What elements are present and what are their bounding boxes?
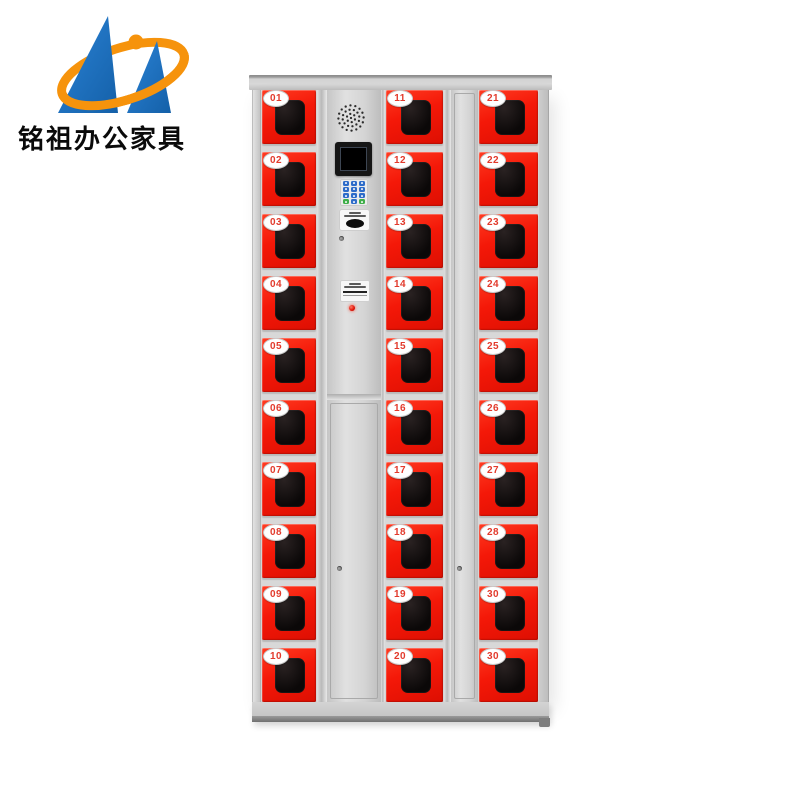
locker-door[interactable]: 09 [262,586,316,640]
console-upper-panel [327,90,381,394]
door-number-badge: 18 [387,524,413,541]
door-number-badge: 17 [387,462,413,479]
logo-dot [129,35,144,50]
keypad-key[interactable] [359,181,365,186]
locker-door[interactable]: 18 [386,524,443,578]
door-number-badge: 20 [387,648,413,665]
door-number-badge: 07 [263,462,289,479]
locker-door[interactable]: 01 [262,90,316,144]
keypad-key[interactable] [351,199,357,204]
locker-door[interactable]: 24 [479,276,538,330]
door-number-badge: 10 [263,648,289,665]
smart-locker-cabinet: 01020304050607080910 [252,75,549,722]
keypad-key[interactable] [343,187,349,192]
printer-instruction-bar [344,286,366,288]
cabinet-body: 01020304050607080910 [252,90,549,702]
keypad-key[interactable] [359,199,365,204]
keyhole-lock[interactable] [337,566,342,571]
door-number-badge: 12 [387,152,413,169]
locker-door[interactable]: 23 [479,214,538,268]
locker-door[interactable]: 25 [479,338,538,392]
door-number-badge: 21 [480,90,506,107]
door-number-badge: 09 [263,586,289,603]
door-column-middle: 11121314151617181920 [385,90,444,702]
cabinet-base-edge [252,716,549,722]
console-service-door[interactable] [327,400,381,702]
door-number-badge: 26 [480,400,506,417]
printer-instruction-bar [349,283,361,285]
door-number-badge: 19 [387,586,413,603]
service-door-outline [330,403,378,699]
brand-logo: 铭祖办公家具 [0,0,240,160]
keypad-key[interactable] [343,181,349,186]
door-number-badge: 05 [263,338,289,355]
locker-door[interactable]: 30 [479,648,538,702]
locker-door[interactable]: 22 [479,152,538,206]
door-number-badge: 25 [480,338,506,355]
door-number-badge: 24 [480,276,506,293]
keypad-key[interactable] [343,199,349,204]
side-panel-outline [454,93,475,699]
door-number-badge: 03 [263,214,289,231]
locker-door[interactable]: 28 [479,524,538,578]
locker-door[interactable]: 15 [386,338,443,392]
door-number-badge: 22 [480,152,506,169]
locker-door[interactable]: 05 [262,338,316,392]
locker-door[interactable]: 08 [262,524,316,578]
printer-slot [343,291,367,293]
locker-door[interactable]: 16 [386,400,443,454]
locker-door[interactable]: 27 [479,462,538,516]
locker-door[interactable]: 06 [262,400,316,454]
door-number-badge: 28 [480,524,506,541]
door-number-badge: 16 [387,400,413,417]
door-number-badge: 06 [263,400,289,417]
product-photo-page: { "brand": { "name_text": "铭祖办公家具" }, "c… [0,0,800,800]
status-led [349,305,355,311]
door-number-badge: 30 [480,648,506,665]
locker-door[interactable]: 30 [479,586,538,640]
keypad-key[interactable] [359,187,365,192]
door-column-right: 21222324252627283030 [478,90,539,702]
locker-door[interactable]: 12 [386,152,443,206]
keypad-key[interactable] [351,181,357,186]
side-service-panel[interactable] [451,90,478,702]
door-number-badge: 15 [387,338,413,355]
control-console [327,90,381,702]
keypad-key[interactable] [343,193,349,198]
column-seam [444,90,451,702]
brand-name-text: 铭祖办公家具 [18,119,218,149]
door-number-badge: 11 [387,90,413,107]
locker-door[interactable]: 04 [262,276,316,330]
locker-door[interactable]: 26 [479,400,538,454]
cabinet-left-frame [253,90,261,702]
door-number-badge: 04 [263,276,289,293]
display-screen[interactable] [335,142,372,176]
locker-door[interactable]: 14 [386,276,443,330]
printer-slot-line [343,295,367,296]
speaker-grille-icon [335,102,367,134]
screen-glass [340,147,367,171]
brand-logo-icon [50,14,200,119]
door-column-left: 01020304050607080910 [261,90,317,702]
reader-instruction-bar [349,212,361,214]
locker-door[interactable]: 03 [262,214,316,268]
door-number-badge: 01 [263,90,289,107]
scanner-window [346,219,364,228]
keyhole-lock[interactable] [457,566,462,571]
cabinet-foot [539,718,550,727]
door-number-badge: 14 [387,276,413,293]
door-number-badge: 02 [263,152,289,169]
locker-door[interactable]: 19 [386,586,443,640]
receipt-printer[interactable] [340,280,370,302]
cabinet-base [252,702,549,722]
locker-door[interactable]: 07 [262,462,316,516]
locker-door[interactable]: 20 [386,648,443,702]
cabinet-top-cap [249,75,552,90]
card-reader[interactable] [339,209,370,231]
locker-door[interactable]: 10 [262,648,316,702]
keypad-key[interactable] [351,193,357,198]
locker-door[interactable]: 11 [386,90,443,144]
door-number-badge: 13 [387,214,413,231]
column-seam [317,90,327,702]
locker-door[interactable]: 13 [386,214,443,268]
locker-door[interactable]: 21 [479,90,538,144]
locker-door[interactable]: 02 [262,152,316,206]
locker-door[interactable]: 17 [386,462,443,516]
door-number-badge: 08 [263,524,289,541]
reader-instruction-bar [344,215,366,217]
door-number-badge: 23 [480,214,506,231]
keyhole-lock[interactable] [339,236,344,241]
door-number-badge: 27 [480,462,506,479]
keypad-key[interactable] [359,193,365,198]
keypad [340,179,368,206]
door-number-badge: 30 [480,586,506,603]
keypad-key[interactable] [351,187,357,192]
